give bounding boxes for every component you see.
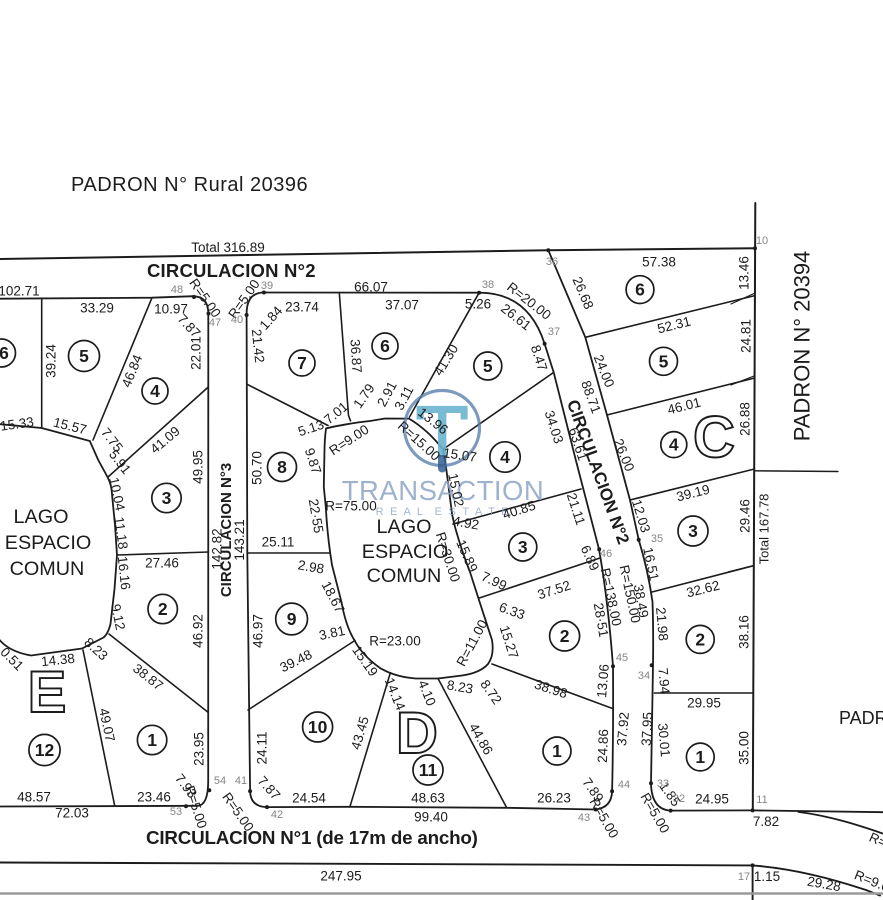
svg-text:1: 1: [147, 730, 157, 750]
svg-text:32: 32: [673, 793, 685, 805]
svg-text:40: 40: [231, 314, 243, 326]
svg-text:2: 2: [695, 629, 705, 649]
svg-text:41: 41: [235, 775, 247, 787]
svg-text:46: 46: [600, 548, 612, 560]
svg-text:CIRCULACION N°2: CIRCULACION N°2: [147, 260, 316, 281]
svg-text:66.07: 66.07: [354, 280, 388, 295]
svg-text:54: 54: [214, 775, 226, 787]
svg-text:35: 35: [651, 533, 663, 545]
svg-text:13.06: 13.06: [594, 664, 612, 699]
svg-text:13.46: 13.46: [737, 256, 752, 290]
svg-text:2: 2: [560, 626, 570, 646]
svg-text:27.46: 27.46: [145, 556, 179, 571]
svg-text:LAGO: LAGO: [14, 506, 69, 528]
svg-text:48: 48: [171, 284, 183, 296]
svg-text:26.88: 26.88: [738, 402, 753, 436]
svg-text:C: C: [693, 405, 735, 470]
svg-text:6: 6: [0, 343, 9, 363]
svg-text:11: 11: [756, 794, 767, 806]
svg-text:R=75.00: R=75.00: [325, 499, 376, 514]
svg-text:COMUN: COMUN: [10, 558, 85, 580]
svg-text:142.82: 142.82: [210, 528, 225, 569]
svg-text:2: 2: [158, 599, 168, 619]
svg-text:29.95: 29.95: [687, 696, 721, 711]
svg-text:6: 6: [635, 280, 645, 300]
svg-text:7.94: 7.94: [655, 667, 672, 695]
svg-text:36.87: 36.87: [347, 339, 364, 374]
svg-text:24.95: 24.95: [695, 792, 729, 807]
svg-text:4: 4: [669, 435, 679, 455]
svg-text:24.81: 24.81: [739, 319, 754, 353]
svg-text:ESPACIO: ESPACIO: [362, 541, 448, 563]
svg-text:24.86: 24.86: [595, 729, 611, 763]
svg-text:3: 3: [688, 521, 698, 541]
svg-text:COMUN: COMUN: [367, 565, 442, 587]
svg-text:45: 45: [616, 652, 628, 664]
svg-text:37.95: 37.95: [639, 712, 656, 747]
svg-text:LAGO: LAGO: [377, 516, 432, 538]
svg-text:48.63: 48.63: [411, 791, 445, 806]
svg-text:PADRON N: PADRON N: [839, 708, 883, 728]
svg-text:57.38: 57.38: [642, 255, 676, 270]
svg-text:1: 1: [552, 741, 562, 761]
svg-text:Total 167.78: Total 167.78: [757, 494, 772, 565]
svg-text:10: 10: [308, 717, 328, 737]
svg-text:37.07: 37.07: [385, 298, 419, 313]
svg-text:47: 47: [209, 317, 221, 329]
svg-text:39.24: 39.24: [44, 344, 59, 378]
svg-text:3: 3: [162, 488, 172, 508]
svg-text:10: 10: [756, 235, 768, 247]
svg-text:12: 12: [35, 740, 55, 760]
svg-text:29.46: 29.46: [738, 499, 753, 533]
svg-text:9: 9: [287, 609, 297, 629]
svg-text:37.92: 37.92: [614, 712, 632, 747]
svg-text:53: 53: [170, 806, 182, 818]
svg-text:D: D: [396, 701, 438, 766]
svg-text:247.95: 247.95: [320, 869, 361, 884]
svg-text:5: 5: [79, 346, 89, 366]
svg-text:1.15: 1.15: [754, 869, 780, 884]
svg-text:44: 44: [618, 779, 630, 791]
svg-text:34: 34: [638, 670, 650, 682]
svg-text:36: 36: [546, 256, 558, 268]
svg-text:102.71: 102.71: [0, 284, 40, 299]
svg-text:6: 6: [380, 336, 390, 356]
svg-text:5: 5: [483, 356, 493, 376]
svg-text:37: 37: [548, 326, 560, 338]
svg-text:23.74: 23.74: [285, 300, 319, 315]
svg-text:50.70: 50.70: [250, 451, 265, 485]
svg-text:PADRON N° 20394: PADRON N° 20394: [790, 251, 815, 442]
svg-text:8: 8: [277, 457, 287, 477]
svg-text:30.01: 30.01: [655, 723, 673, 758]
svg-text:46.97: 46.97: [251, 614, 266, 648]
svg-text:39: 39: [261, 280, 273, 292]
svg-text:5: 5: [659, 351, 669, 371]
svg-text:4: 4: [500, 447, 510, 467]
svg-text:35.00: 35.00: [737, 731, 752, 765]
svg-text:21.98: 21.98: [653, 607, 671, 642]
svg-text:E: E: [28, 660, 67, 725]
svg-text:33: 33: [657, 778, 669, 790]
svg-text:R=23.00: R=23.00: [369, 634, 420, 649]
svg-text:17: 17: [738, 871, 750, 883]
svg-text:42: 42: [271, 809, 283, 821]
svg-text:5.26: 5.26: [465, 297, 491, 312]
svg-text:72.03: 72.03: [55, 806, 89, 821]
svg-text:38: 38: [482, 279, 494, 291]
svg-text:143.21: 143.21: [232, 519, 247, 560]
svg-text:PADRON N° Rural 20396: PADRON N° Rural 20396: [71, 174, 308, 196]
svg-text:24.11: 24.11: [255, 732, 270, 765]
svg-text:38.16: 38.16: [737, 615, 752, 649]
svg-text:26.23: 26.23: [537, 791, 571, 806]
svg-text:Total 316.89: Total 316.89: [191, 240, 265, 255]
svg-text:49.95: 49.95: [191, 450, 206, 484]
svg-text:1: 1: [695, 747, 705, 767]
svg-text:99.40: 99.40: [414, 810, 448, 825]
svg-text:7.82: 7.82: [753, 814, 779, 829]
svg-text:24.54: 24.54: [292, 791, 326, 806]
svg-text:33.29: 33.29: [80, 301, 114, 316]
svg-text:3: 3: [518, 537, 528, 557]
svg-text:ESPACIO: ESPACIO: [5, 532, 91, 554]
svg-text:25.11: 25.11: [262, 535, 295, 550]
svg-text:7: 7: [297, 353, 307, 373]
svg-text:22.01: 22.01: [189, 336, 204, 370]
svg-text:43: 43: [578, 812, 590, 824]
svg-text:4: 4: [150, 381, 160, 401]
svg-text:23.46: 23.46: [137, 790, 171, 805]
svg-text:46.92: 46.92: [191, 614, 206, 648]
svg-text:23.95: 23.95: [192, 732, 207, 766]
svg-text:48.57: 48.57: [17, 790, 51, 805]
